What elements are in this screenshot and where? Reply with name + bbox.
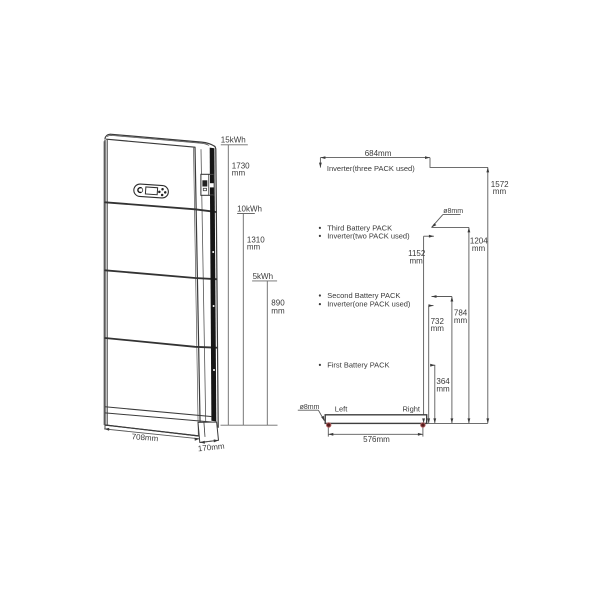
svg-text:Inverter(one PACK used): Inverter(one PACK used) (327, 300, 411, 309)
svg-text:mm: mm (493, 187, 507, 196)
svg-text:Inverter(two PACK used): Inverter(two PACK used) (327, 232, 410, 241)
svg-text:576mm: 576mm (363, 435, 390, 444)
svg-text:First Battery PACK: First Battery PACK (327, 360, 389, 369)
svg-text:mm: mm (271, 307, 285, 316)
svg-text:mm: mm (454, 316, 468, 325)
svg-text:ø8mm: ø8mm (443, 208, 463, 215)
svg-text:ø8mm: ø8mm (300, 404, 320, 411)
svg-text:mm: mm (410, 256, 424, 265)
svg-text:mm: mm (431, 324, 445, 333)
svg-text:708mm: 708mm (131, 432, 159, 443)
svg-text:15kWh: 15kWh (221, 136, 246, 145)
svg-text:mm: mm (436, 384, 450, 393)
svg-text:mm: mm (472, 244, 486, 253)
svg-text:mm: mm (247, 243, 261, 252)
svg-text:5kWh: 5kWh (253, 272, 273, 281)
svg-text:mm: mm (232, 169, 246, 178)
svg-text:Inverter(three PACK used): Inverter(three PACK used) (327, 164, 415, 173)
svg-text:684mm: 684mm (365, 149, 392, 158)
svg-text:Left: Left (335, 405, 348, 414)
svg-text:Right: Right (403, 405, 421, 414)
svg-text:170mm: 170mm (197, 442, 225, 454)
svg-text:10kWh: 10kWh (237, 204, 262, 213)
